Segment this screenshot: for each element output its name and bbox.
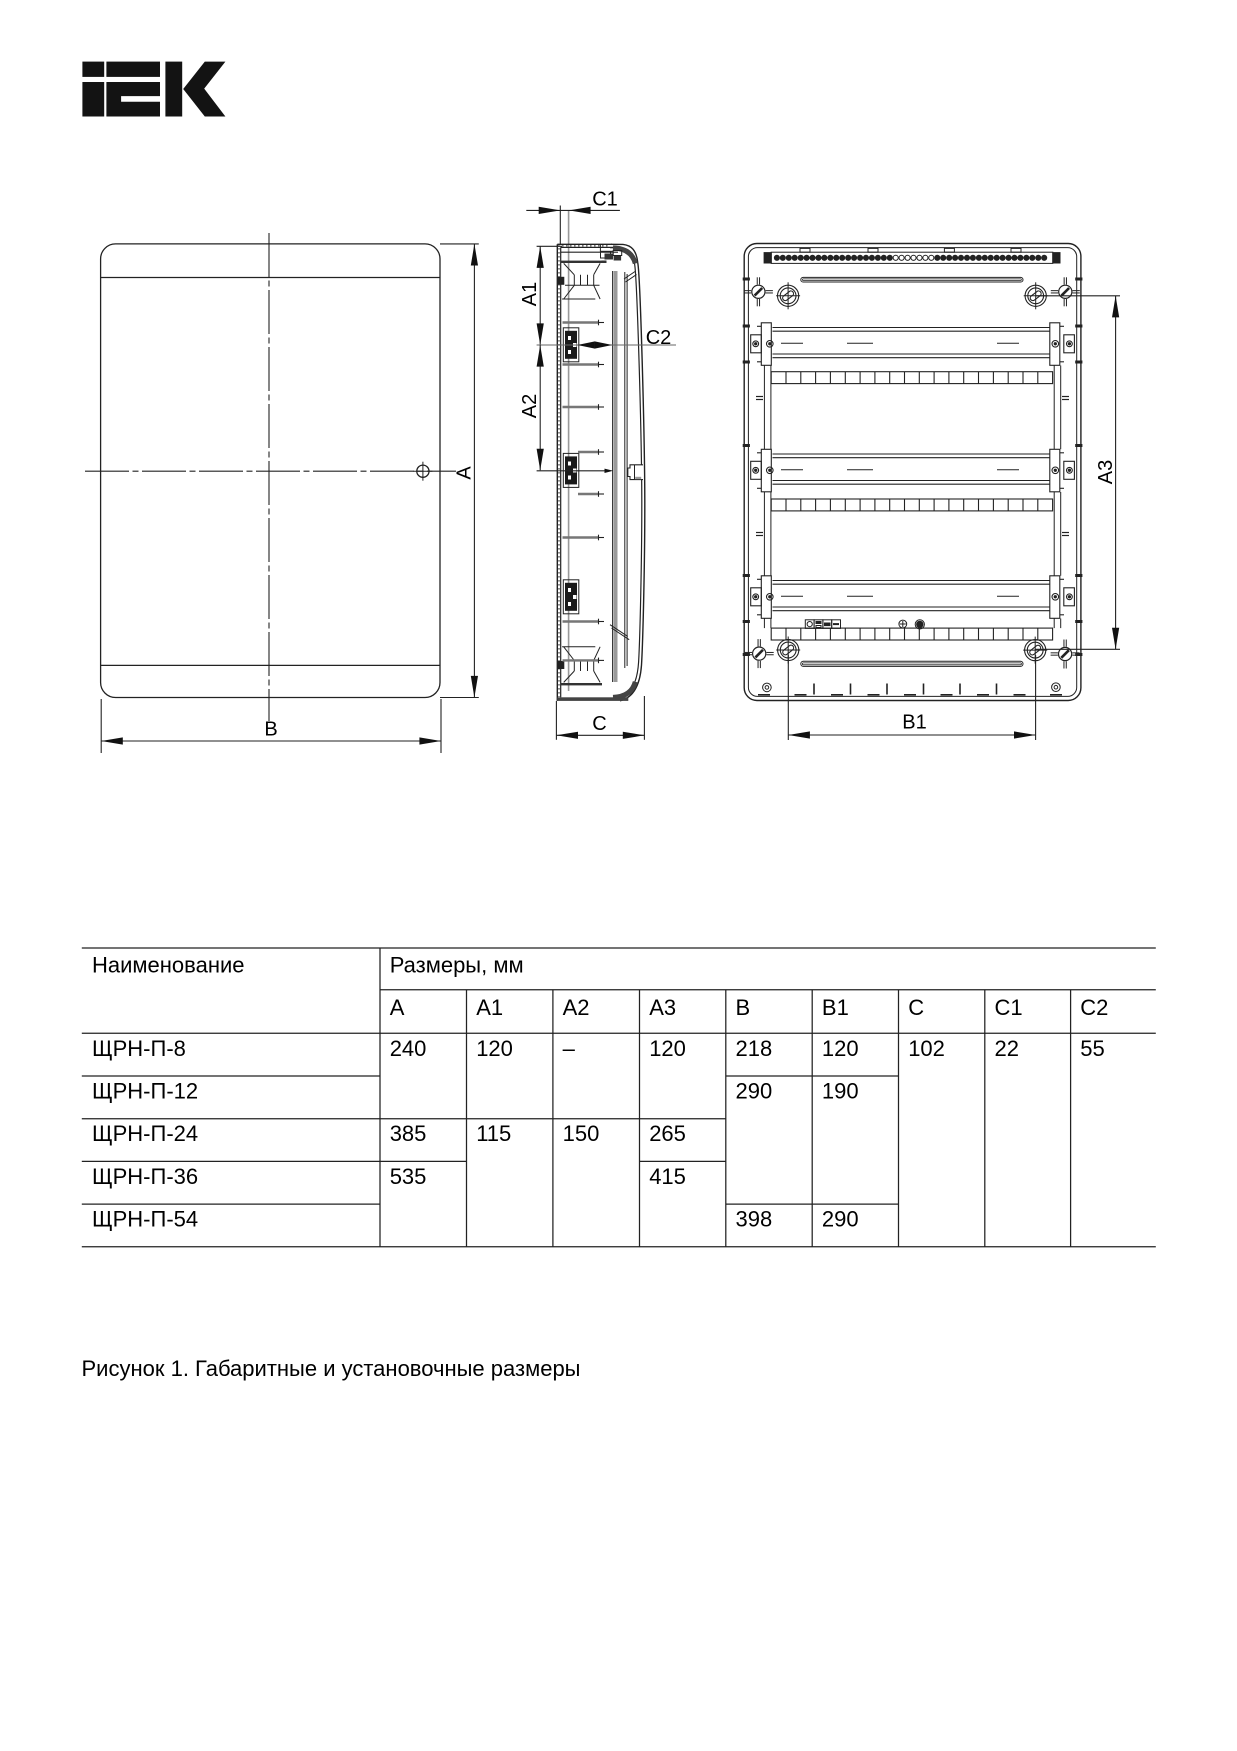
svg-text:290: 290 <box>822 1207 859 1232</box>
svg-text:115: 115 <box>476 1121 511 1146</box>
svg-text:–: – <box>563 1036 576 1061</box>
svg-text:C: C <box>908 995 924 1020</box>
svg-text:290: 290 <box>736 1079 773 1104</box>
svg-text:Наименование: Наименование <box>92 952 245 977</box>
svg-text:A: A <box>390 995 405 1020</box>
svg-text:120: 120 <box>649 1036 686 1061</box>
svg-text:ЩРН-П-36: ЩРН-П-36 <box>92 1164 198 1189</box>
svg-text:120: 120 <box>476 1036 513 1061</box>
svg-text:C1: C1 <box>995 995 1023 1020</box>
svg-text:ЩРН-П-24: ЩРН-П-24 <box>92 1121 198 1146</box>
svg-text:A2: A2 <box>519 394 541 418</box>
svg-text:22: 22 <box>995 1036 1019 1061</box>
svg-text:120: 120 <box>822 1036 859 1061</box>
svg-text:B1: B1 <box>902 712 926 734</box>
svg-text:ЩРН-П-54: ЩРН-П-54 <box>92 1207 198 1232</box>
svg-text:190: 190 <box>822 1079 859 1104</box>
svg-text:B1: B1 <box>822 995 849 1020</box>
svg-text:55: 55 <box>1080 1036 1104 1061</box>
svg-text:Рисунок 1. Габаритные и устано: Рисунок 1. Габаритные и установочные раз… <box>82 1356 581 1381</box>
svg-text:A2: A2 <box>563 995 590 1020</box>
svg-text:385: 385 <box>390 1121 427 1146</box>
svg-text:102: 102 <box>908 1036 945 1061</box>
svg-text:A1: A1 <box>519 282 541 306</box>
svg-text:A3: A3 <box>649 995 676 1020</box>
svg-text:A1: A1 <box>476 995 503 1020</box>
svg-text:415: 415 <box>649 1164 686 1189</box>
svg-text:Размеры, мм: Размеры, мм <box>390 952 524 977</box>
svg-text:265: 265 <box>649 1121 686 1146</box>
svg-text:398: 398 <box>736 1207 773 1232</box>
svg-text:C1: C1 <box>592 189 618 211</box>
svg-text:B: B <box>264 718 277 740</box>
svg-text:240: 240 <box>390 1036 427 1061</box>
svg-text:ЩРН-П-12: ЩРН-П-12 <box>92 1079 198 1104</box>
svg-text:A: A <box>454 466 476 480</box>
svg-text:A3: A3 <box>1095 460 1117 484</box>
svg-text:C2: C2 <box>646 327 672 349</box>
svg-text:150: 150 <box>563 1121 600 1146</box>
svg-text:535: 535 <box>390 1164 427 1189</box>
svg-text:B: B <box>736 995 751 1020</box>
svg-text:ЩРН-П-8: ЩРН-П-8 <box>92 1036 186 1061</box>
svg-text:218: 218 <box>736 1036 773 1061</box>
svg-text:C2: C2 <box>1080 995 1108 1020</box>
svg-text:C: C <box>592 713 606 735</box>
